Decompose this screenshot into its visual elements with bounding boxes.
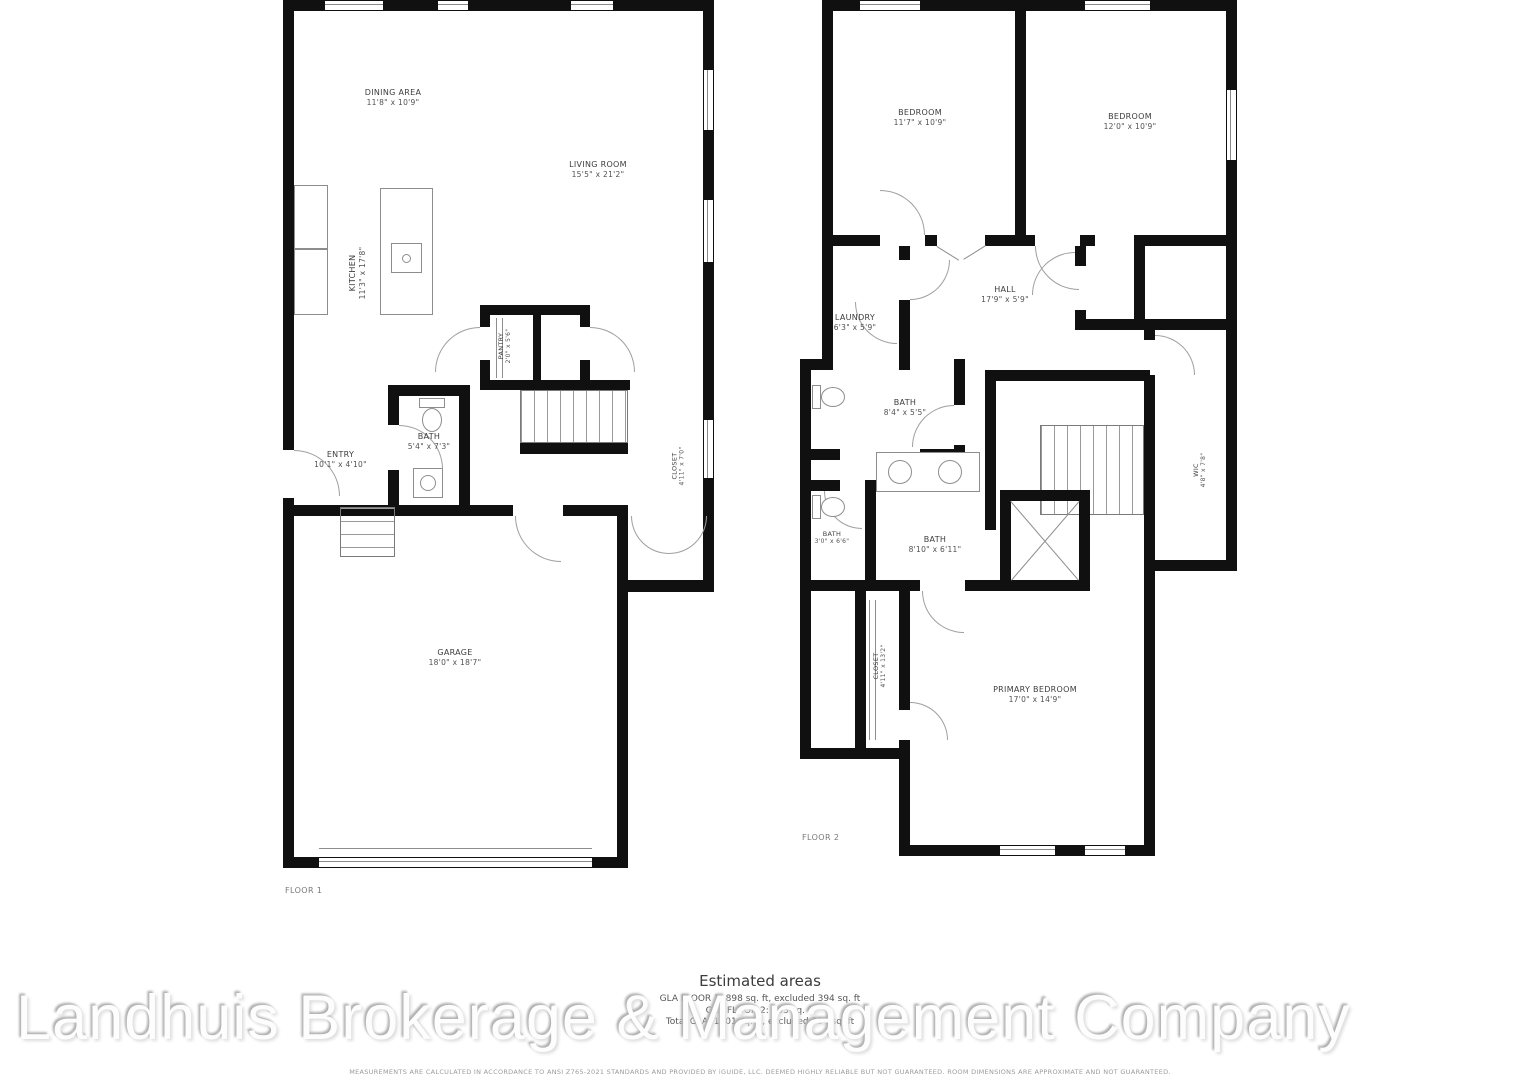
wall — [1144, 375, 1155, 571]
room-dims: 11'8" x 10'9" — [318, 98, 468, 108]
door-arc — [435, 327, 480, 372]
wall — [628, 580, 714, 592]
floor2-plan: BEDROOM 11'7" x 10'9" BEDROOM 12'0" x 10… — [800, 0, 1240, 870]
room-name: BEDROOM — [1055, 112, 1205, 122]
fixture — [402, 254, 411, 263]
room-label-entry: ENTRY 10'1" x 4'10" — [293, 450, 388, 470]
fixture — [938, 460, 962, 484]
wall — [800, 480, 840, 491]
door-arc — [631, 516, 669, 554]
wall — [925, 235, 937, 246]
room-label-kitchen: KITCHEN 11'3" x 17'8" — [348, 218, 368, 328]
door-arc — [515, 516, 561, 562]
room-name: ENTRY — [293, 450, 388, 460]
window — [319, 857, 592, 868]
wall — [1075, 246, 1086, 266]
wall — [1000, 490, 1090, 501]
wall — [899, 590, 910, 710]
door-arc — [922, 591, 964, 633]
room-name: LAUNDRY — [810, 313, 900, 323]
room-name: DINING AREA — [318, 88, 468, 98]
room-dims: 8'10" x 6'11" — [890, 545, 980, 555]
room-dims: 4'11" x 13'2" — [880, 621, 888, 711]
door-arc — [590, 327, 635, 372]
wall — [1144, 330, 1155, 340]
fixture — [419, 398, 445, 408]
window — [438, 0, 468, 11]
wall — [590, 380, 630, 390]
room-dims: 4'8" x 7'8" — [1200, 425, 1208, 515]
room-dims: 6'3" x 5'9" — [810, 323, 900, 333]
room-dims: 4'11" x 7'0" — [679, 419, 687, 514]
wall — [899, 246, 910, 260]
wall — [480, 360, 490, 390]
room-name: PRIMARY BEDROOM — [960, 685, 1110, 695]
floor2-tag: FLOOR 2 — [802, 833, 839, 842]
wall — [1144, 560, 1237, 571]
fixture — [812, 385, 821, 409]
wall — [1134, 246, 1145, 330]
window — [703, 200, 714, 262]
wall — [1026, 235, 1035, 246]
window — [571, 0, 613, 11]
wall — [985, 370, 1150, 381]
watermark-text: Landhuis Brokerage & Management Company — [16, 982, 1351, 1054]
room-dims: 5'4" x 7'3" — [389, 442, 469, 452]
room-label-bath2: BATH 3'0" x 6'6" — [800, 530, 864, 546]
room-dims: 12'0" x 10'9" — [1055, 122, 1205, 132]
cross-line — [936, 246, 959, 261]
window — [325, 0, 383, 11]
room-label-closet: CLOSET 4'11" x 7'0" — [671, 419, 687, 514]
wall — [899, 740, 910, 856]
room-label-bath: BATH 5'4" x 7'3" — [389, 432, 469, 452]
wall — [520, 443, 628, 454]
room-label-laundry: LAUNDRY 6'3" x 5'9" — [810, 313, 900, 333]
fixture — [888, 460, 912, 484]
room-dims: 2'0" x 5'6" — [505, 306, 513, 386]
room-name: KITCHEN — [348, 218, 358, 328]
room-name: CLOSET — [671, 419, 679, 514]
fixture — [422, 408, 442, 432]
wall — [283, 498, 294, 868]
room-label-bath1: BATH 8'4" x 5'5" — [860, 398, 950, 418]
fixture — [420, 475, 436, 491]
room-name: BATH — [860, 398, 950, 408]
window — [1085, 845, 1125, 856]
door-arc — [880, 190, 925, 235]
window — [703, 420, 714, 478]
wall — [283, 0, 294, 450]
wall — [283, 857, 319, 868]
wall — [822, 235, 880, 246]
stairs — [520, 390, 628, 443]
wall — [533, 310, 541, 385]
wall — [592, 857, 628, 868]
room-name: BEDROOM — [845, 108, 995, 118]
wall — [1079, 490, 1090, 591]
wall — [800, 449, 840, 460]
room-label-closet: CLOSET 4'11" x 13'2" — [872, 621, 888, 711]
cabinet — [294, 249, 328, 315]
room-label-wic: WIC 4'8" x 7'8" — [1192, 425, 1208, 515]
wall — [1000, 490, 1011, 591]
wall — [899, 300, 910, 370]
room-dims: 18'0" x 18'7" — [380, 658, 530, 668]
room-dims: 11'7" x 10'9" — [845, 118, 995, 128]
window — [1000, 845, 1055, 856]
room-dims: 3'0" x 6'6" — [800, 538, 864, 546]
wall — [480, 305, 490, 327]
wall — [1015, 0, 1026, 246]
room-label-primary: PRIMARY BEDROOM 17'0" x 14'9" — [960, 685, 1110, 705]
wall — [800, 748, 910, 759]
room-name: BATH — [800, 530, 864, 538]
room-dims: 8'4" x 5'5" — [860, 408, 950, 418]
room-label-hall: HALL 17'9" x 5'9" — [950, 285, 1060, 305]
steps — [340, 507, 395, 557]
room-name: LIVING ROOM — [523, 160, 673, 170]
wall — [1000, 580, 1090, 591]
cabinet — [294, 185, 328, 249]
shelf-line — [319, 848, 592, 849]
room-label-bath3: BATH 8'10" x 6'11" — [890, 535, 980, 555]
room-name: HALL — [950, 285, 1060, 295]
floor1-plan: DINING AREA 11'8" x 10'9" LIVING ROOM 15… — [283, 0, 729, 910]
wall — [580, 360, 590, 390]
door-arc — [910, 702, 948, 740]
wall — [800, 359, 811, 759]
room-label-dining: DINING AREA 11'8" x 10'9" — [318, 88, 468, 108]
room-dims: 17'0" x 14'9" — [960, 695, 1110, 705]
wall — [1080, 235, 1095, 246]
room-name: WIC — [1192, 425, 1200, 515]
wall — [865, 480, 876, 591]
floor1-tag: FLOOR 1 — [285, 886, 322, 895]
door-arc — [669, 516, 707, 554]
room-dims: 10'1" x 4'10" — [293, 460, 388, 470]
door-arc — [910, 260, 950, 300]
room-name: BATH — [389, 432, 469, 442]
wall — [1134, 235, 1237, 246]
room-dims: 15'5" x 21'2" — [523, 170, 673, 180]
floorplan-page: DINING AREA 11'8" x 10'9" LIVING ROOM 15… — [0, 0, 1521, 1080]
room-label-living: LIVING ROOM 15'5" x 21'2" — [523, 160, 673, 180]
wall — [388, 385, 399, 425]
window — [1226, 90, 1237, 160]
room-name: GARAGE — [380, 648, 530, 658]
wall — [954, 359, 965, 405]
room-name: CLOSET — [872, 621, 880, 711]
wall — [388, 385, 470, 396]
room-name: BATH — [890, 535, 980, 545]
disclaimer-text: MEASUREMENTS ARE CALCULATED IN ACCORDANC… — [340, 1068, 1180, 1076]
room-label-garage: GARAGE 18'0" x 18'7" — [380, 648, 530, 668]
wall — [617, 505, 628, 868]
fixture — [821, 497, 845, 517]
fixture — [812, 495, 821, 519]
wall — [985, 370, 996, 530]
room-dims: 17'9" x 5'9" — [950, 295, 1060, 305]
room-dims: 11'3" x 17'8" — [358, 218, 368, 328]
fixture — [821, 387, 845, 407]
cross-line — [963, 245, 986, 260]
wall — [1144, 319, 1237, 330]
room-label-bedroom2: BEDROOM 12'0" x 10'9" — [1055, 112, 1205, 132]
room-label-pantry: PANTRY 2'0" x 5'6" — [497, 306, 513, 386]
wall — [1226, 0, 1237, 571]
wall — [580, 305, 590, 327]
wall — [855, 590, 866, 748]
stairs — [1040, 425, 1144, 515]
window — [703, 70, 714, 130]
wall — [1144, 560, 1155, 856]
window — [1085, 0, 1150, 11]
shelf-line — [869, 600, 870, 740]
wall — [985, 235, 1017, 246]
door-arc — [1155, 335, 1195, 375]
room-name: PANTRY — [497, 306, 505, 386]
room-label-bedroom1: BEDROOM 11'7" x 10'9" — [845, 108, 995, 128]
window — [860, 0, 920, 11]
